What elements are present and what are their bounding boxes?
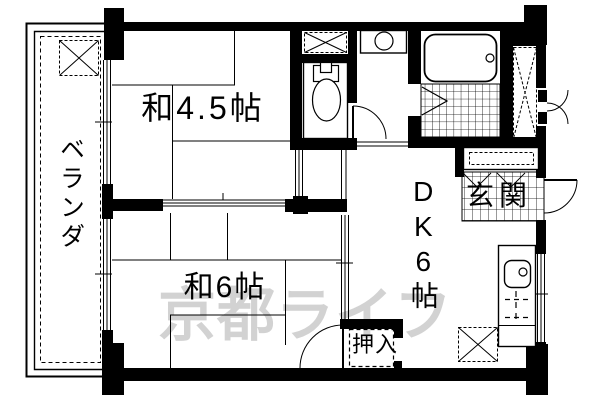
toilet-icon — [313, 79, 341, 121]
washroom-entry-line — [357, 142, 408, 146]
fusuma-room6-dk — [336, 215, 353, 319]
shoe-cabinet — [464, 148, 539, 170]
toilet-door-swing — [353, 106, 386, 139]
bathroom — [421, 35, 500, 138]
wall-bath-left — [408, 116, 421, 138]
refrigerator-cross — [459, 328, 498, 362]
fusuma-between-rooms — [163, 193, 285, 206]
fusuma-room45-dk — [296, 150, 303, 199]
floorplan: 京都ライフ — [0, 0, 600, 400]
wall-segment — [112, 22, 546, 31]
room-label-closet: 押入 — [352, 333, 398, 357]
wall-closet-corner — [394, 361, 402, 372]
storage-door-leaf — [538, 112, 547, 124]
storage-cross — [514, 48, 537, 139]
wall-closet-top — [340, 319, 403, 329]
partition-nook — [342, 150, 347, 199]
wall-segment — [536, 342, 546, 372]
wall-room-divider — [112, 199, 163, 211]
toilet-lid — [321, 63, 332, 73]
washbasin-area — [361, 31, 407, 54]
washing-machine-space — [305, 33, 347, 53]
wall-washer-divider — [302, 54, 348, 63]
toilet-room — [304, 63, 387, 140]
washbasin-icon — [375, 32, 393, 50]
room-label-veranda: ベランダ — [56, 136, 84, 252]
window-left-upper — [95, 60, 112, 184]
bathtub-drain — [486, 54, 494, 62]
entrance-door-swing — [544, 180, 577, 213]
wall-toilet-bottom — [290, 138, 357, 150]
wall-toilet-right — [348, 30, 357, 103]
room-label-japanese-45: 和4.5帖 — [122, 91, 284, 126]
window-left-lower — [95, 219, 112, 330]
wall-bath-right — [500, 31, 513, 138]
room-label-entrance: 玄関 — [466, 181, 532, 212]
wall-segment — [536, 30, 546, 88]
storage-door-leaf — [538, 90, 547, 102]
storage-door-swing — [547, 90, 568, 124]
room6-door-swing — [300, 325, 343, 368]
washing-machine-cross — [305, 33, 347, 53]
wall-segment — [536, 220, 546, 254]
wall-bath-left — [408, 31, 421, 84]
kitchen-faucet — [519, 268, 527, 276]
ac-unit-cross — [60, 41, 99, 76]
wall-segment — [513, 31, 537, 46]
wall-segment — [112, 368, 546, 381]
wall-toilet-left — [290, 30, 302, 150]
kitchen-area — [459, 246, 537, 362]
room-label-dining-kitchen: DK6帖 — [407, 176, 438, 313]
bathroom-tile-floor — [421, 84, 500, 137]
wall-pillar — [104, 8, 124, 60]
room-label-japanese-6: 和6帖 — [172, 271, 278, 304]
wall-segment — [102, 184, 113, 219]
